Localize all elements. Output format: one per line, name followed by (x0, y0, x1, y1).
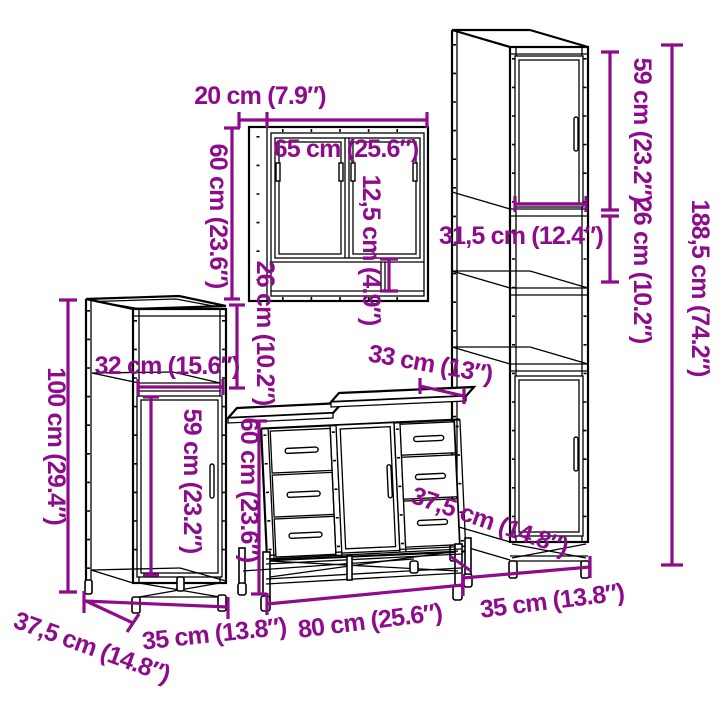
dim-tall-base-label: 35 cm (13.8″) (478, 578, 626, 623)
door-handle-icon (574, 117, 578, 151)
dim-tall-base-width: 35 cm (13.8″) (463, 556, 626, 624)
foot-icon (132, 597, 140, 613)
leg-icon (455, 544, 462, 588)
foot-icon (581, 561, 589, 578)
sink-door (336, 423, 400, 553)
drawer-handle-icon (289, 532, 322, 538)
dim-mirror-lower-label: 26 cm (10.2″) (251, 261, 279, 406)
dim-mirror-height: 60 cm (23.6″) (204, 128, 240, 299)
dim-tall-total-height: 188,5 cm (74.2″) (661, 45, 714, 565)
sink-right-drawers (400, 422, 460, 547)
dim-tall-shelf-label: 26 cm (10.2″) (628, 199, 656, 344)
door-handle-icon (210, 464, 214, 498)
dim-tall-inner-width: 31,5 cm (12.4″) (439, 196, 603, 250)
door-handle-icon (574, 437, 578, 471)
door-handle-icon (387, 465, 392, 498)
dim-mirror-depth: 20 cm (7.9″) (194, 82, 427, 128)
dim-mirror-depth-label: 20 cm (7.9″) (194, 82, 326, 110)
drawer-handle-icon (287, 491, 320, 497)
dim-tall-shelf-section: 26 cm (10.2″) (601, 199, 656, 344)
dim-side-height-label: 100 cm (29.4″) (42, 367, 70, 525)
foot-icon (238, 583, 246, 595)
drawer-handle-icon (415, 473, 445, 479)
foot-icon (177, 577, 184, 591)
hinge-icon (276, 163, 280, 181)
dim-tall-width-label: 31,5 cm (12.4″) (439, 222, 603, 250)
tall-upper-door (515, 56, 583, 207)
dim-side-compartment-label: 32 cm (15.6″) (95, 352, 240, 380)
dim-tall-upper-door-height: 59 cm (23.2″) (601, 52, 656, 210)
dim-mirror-height-label: 60 cm (23.6″) (204, 144, 232, 289)
dim-side-compartment-width: 32 cm (15.6″) (95, 352, 240, 395)
foot-icon (410, 561, 418, 573)
hinge-icon (339, 163, 343, 181)
drawer-handle-icon (414, 435, 444, 441)
dim-side-door-label: 59 cm (23.2″) (178, 409, 206, 554)
foot-icon (453, 586, 462, 600)
drawer-handle-icon (285, 447, 318, 453)
dim-tall-door-label: 59 cm (23.2″) (628, 58, 656, 203)
leg-icon (347, 556, 352, 580)
furniture-dimension-diagram: 20 cm (7.9″) 65 cm (25.6″) 60 cm (23.6″)… (0, 0, 720, 720)
foot-icon (85, 580, 92, 594)
dim-side-base-label: 35 cm (13.8″) (141, 613, 288, 656)
dim-mirror-width-label: 65 cm (25.6″) (274, 135, 419, 163)
tall-cabinet-drawing (450, 30, 589, 578)
foot-icon (218, 595, 226, 611)
dim-sink-width-label: 80 cm (25.6″) (296, 598, 444, 643)
diagram-canvas: 20 cm (7.9″) 65 cm (25.6″) 60 cm (23.6″)… (0, 0, 720, 720)
dim-mirror-lower-section: 26 cm (10.2″) (229, 261, 279, 406)
dim-tall-total-label: 188,5 cm (74.2″) (686, 199, 714, 377)
dim-sink-width: 80 cm (25.6″) (267, 574, 463, 644)
sink-left-drawers (270, 428, 336, 557)
hinge-icon (413, 163, 417, 181)
dim-side-height: 100 cm (29.4″) (42, 300, 77, 592)
dim-mirror-shelf-label: 12,5 cm (4.9″) (357, 175, 385, 326)
dim-sink-height-label: 60 cm (23.6″) (235, 418, 263, 563)
tall-lower-door (515, 376, 583, 536)
hinge-icon (351, 163, 355, 181)
